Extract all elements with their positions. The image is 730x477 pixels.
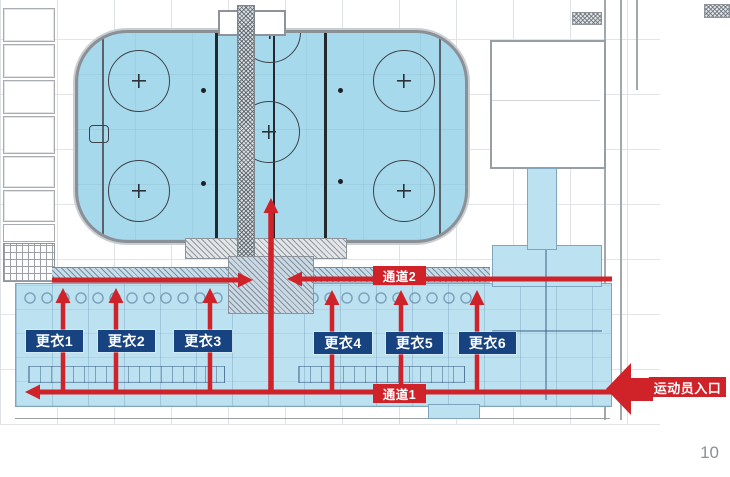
- faceoff-dot: [201, 181, 206, 186]
- label-changing-room-4: 更衣4: [314, 332, 372, 354]
- goal-line: [439, 33, 441, 240]
- blue-line: [215, 33, 218, 240]
- stair-block: [572, 12, 602, 25]
- bench-row: [28, 366, 225, 383]
- athlete-zone-upper: [492, 245, 602, 287]
- corridor-hatch: [52, 267, 238, 283]
- room-outline: [3, 80, 55, 114]
- wall-line: [620, 0, 622, 420]
- service-strip: [237, 5, 255, 260]
- slide-canvas: 更衣1 更衣2 更衣3 更衣4 更衣5 更衣6 通道2 通道1 运动员入口 10: [0, 0, 730, 477]
- faceoff-circle: [108, 50, 170, 112]
- faceoff-circle: [373, 160, 435, 222]
- ice-rink: [75, 30, 468, 243]
- room-outline: [3, 8, 55, 42]
- bench-row: [298, 366, 465, 383]
- faceoff-dot: [338, 179, 343, 184]
- label-corridor-1: 通道1: [373, 384, 426, 403]
- room-outline: [3, 190, 55, 222]
- stair-block: [704, 4, 730, 18]
- wall-line: [545, 250, 547, 400]
- blue-corridor: [527, 168, 557, 250]
- wall-line: [636, 0, 638, 90]
- room-outline: [490, 40, 606, 169]
- page-number: 10: [700, 443, 719, 463]
- rink-gate: [89, 125, 109, 143]
- room-outline: [3, 224, 55, 242]
- zone-extension: [428, 404, 480, 419]
- sanitary-fixtures: [22, 288, 232, 310]
- seating-block: [3, 243, 55, 282]
- floor-plan: 更衣1 更衣2 更衣3 更衣4 更衣5 更衣6 通道2 通道1 运动员入口: [0, 0, 730, 430]
- label-changing-room-5: 更衣5: [386, 332, 443, 354]
- label-athlete-entrance: 运动员入口: [649, 377, 726, 397]
- wall-line: [492, 100, 600, 101]
- blue-line: [324, 33, 327, 240]
- faceoff-dot: [338, 88, 343, 93]
- faceoff-dot: [201, 88, 206, 93]
- central-corridor-hatch: [228, 256, 314, 314]
- faceoff-circle: [373, 50, 435, 112]
- label-changing-room-1: 更衣1: [26, 330, 83, 352]
- room-outline: [3, 44, 55, 78]
- wall-line: [15, 418, 610, 419]
- label-changing-room-2: 更衣2: [98, 330, 155, 352]
- label-changing-room-6: 更衣6: [459, 332, 516, 354]
- sanitary-fixtures: [288, 288, 478, 310]
- label-corridor-2: 通道2: [373, 266, 426, 285]
- room-outline: [3, 156, 55, 188]
- room-outline: [3, 116, 55, 154]
- faceoff-circle: [108, 160, 170, 222]
- label-changing-room-3: 更衣3: [174, 330, 232, 352]
